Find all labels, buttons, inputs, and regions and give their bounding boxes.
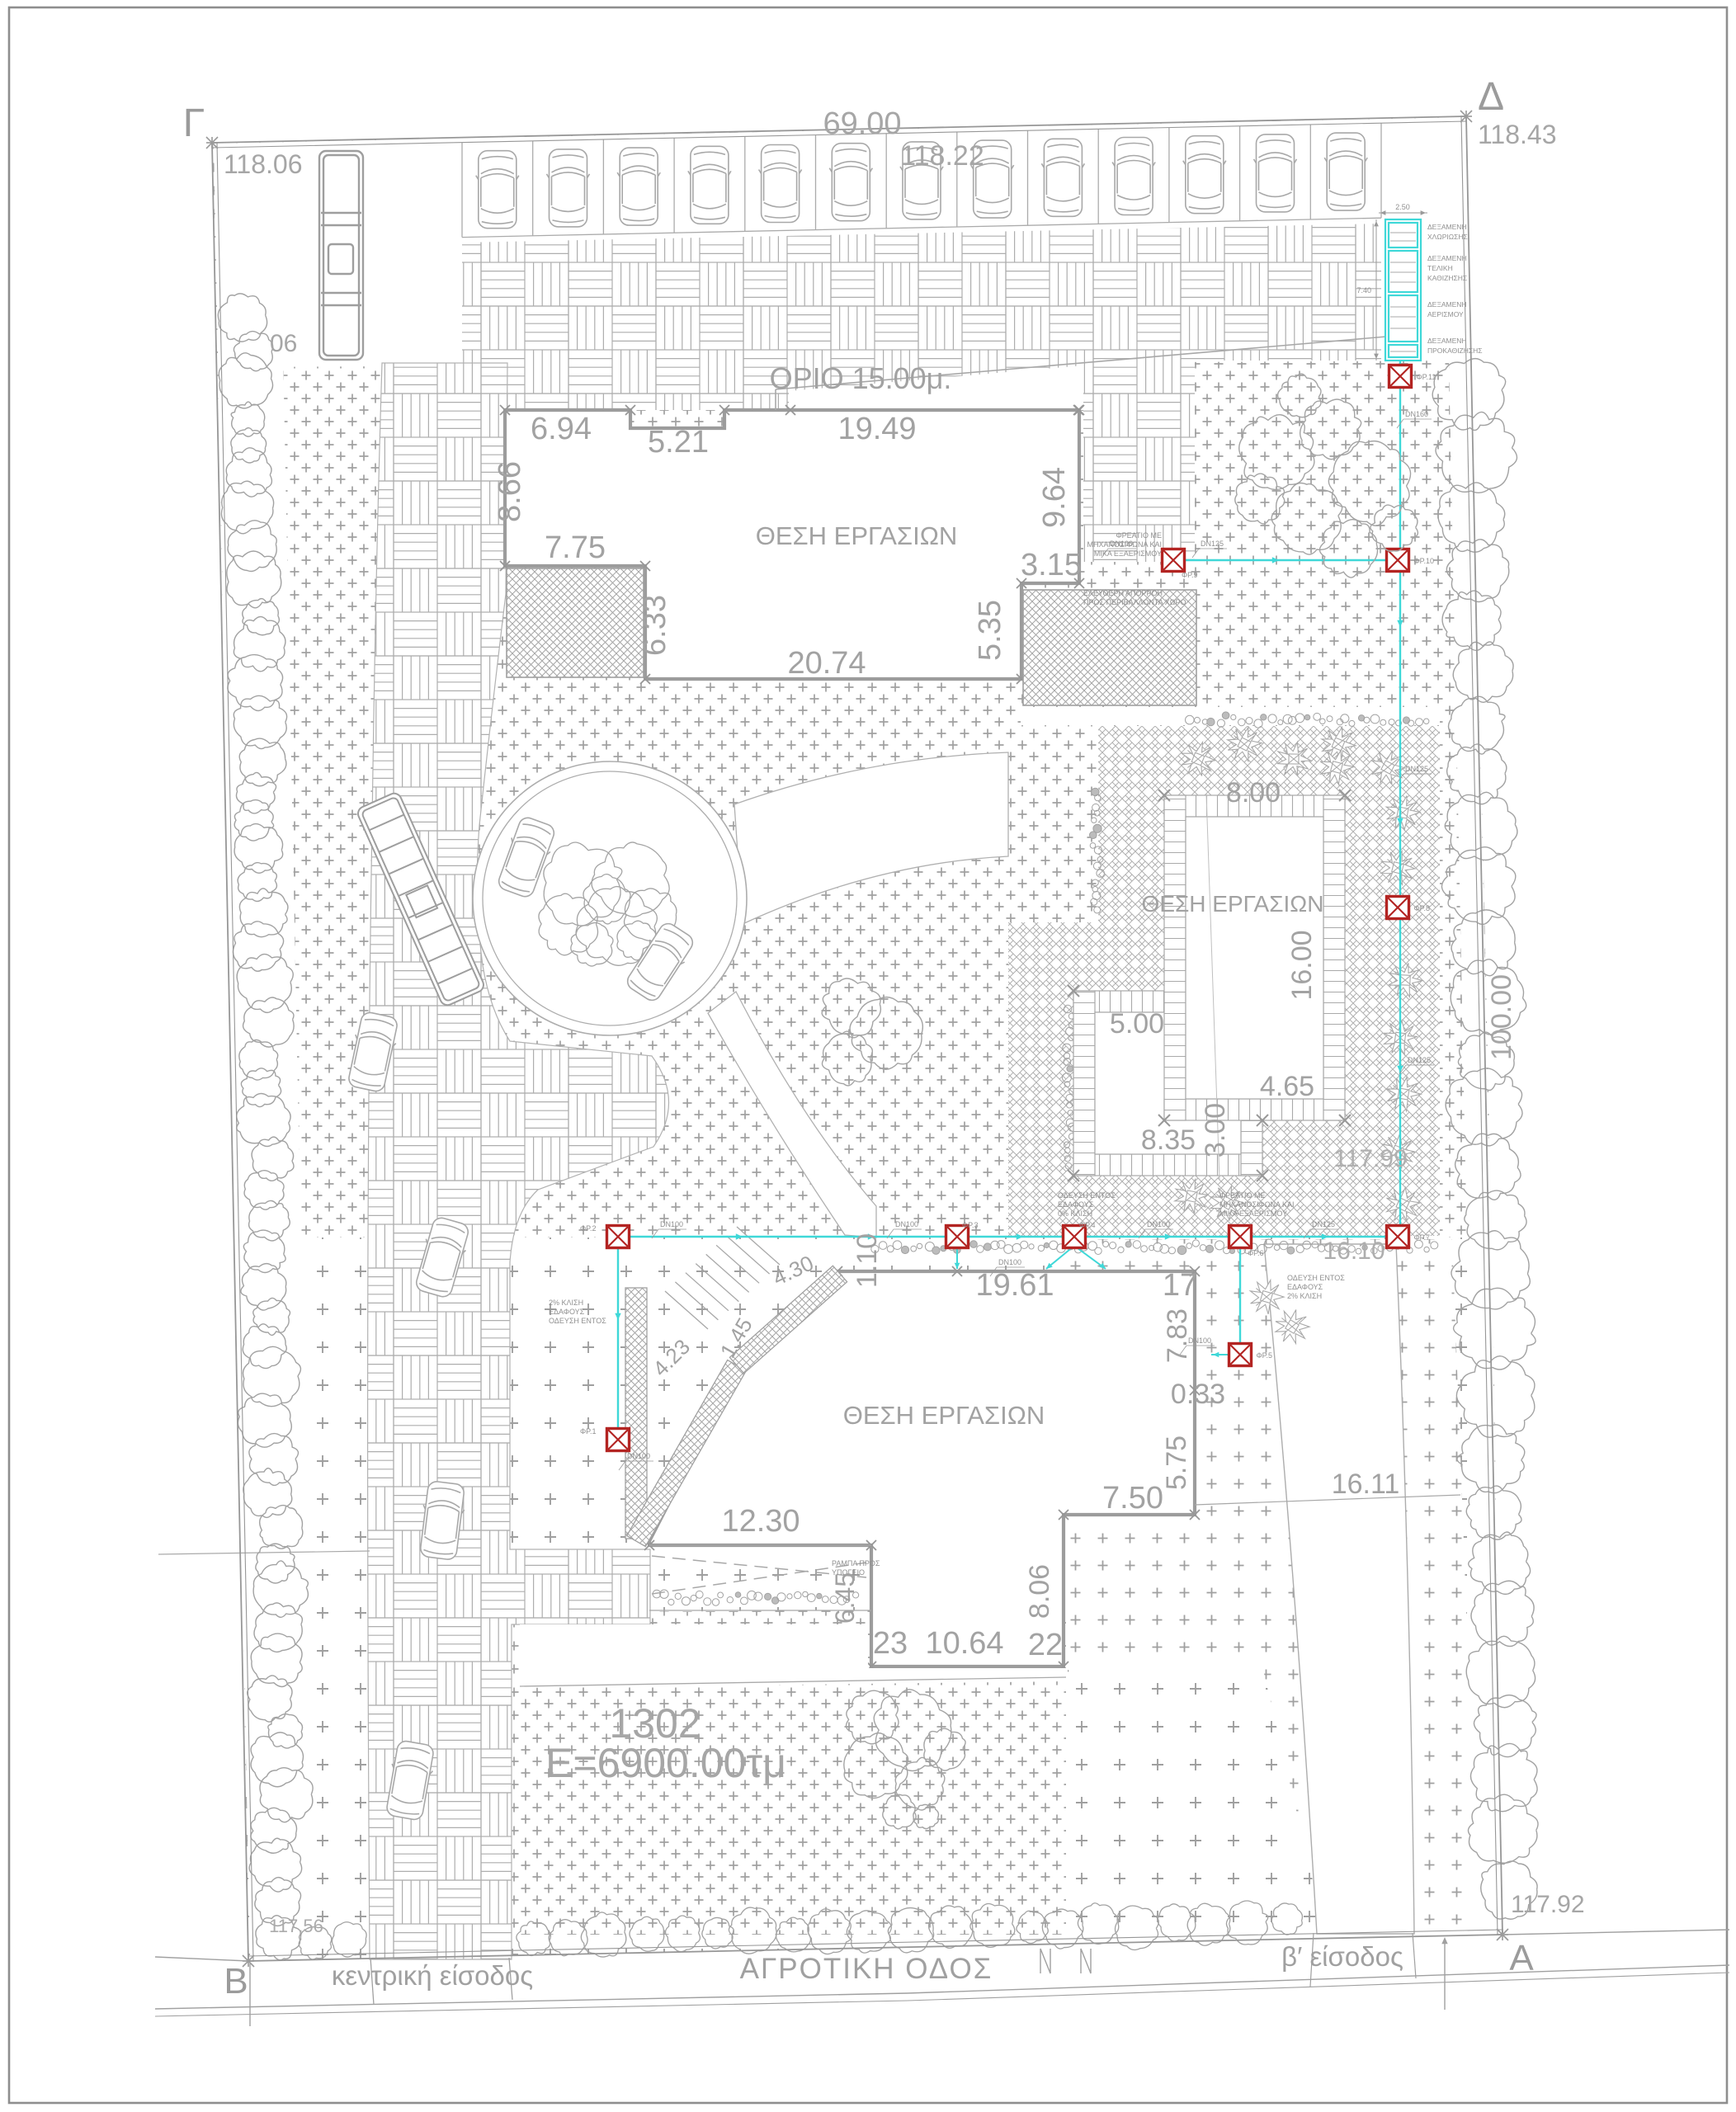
svg-text:ΜΙΚΑ ΕΞΑΕΡΙΣΜΟΥ: ΜΙΚΑ ΕΞΑΕΡΙΣΜΟΥ [1094, 549, 1162, 558]
svg-text:23: 23 [873, 1626, 908, 1661]
svg-text:16.10: 16.10 [1323, 1237, 1385, 1265]
svg-text:β′ είσοδος: β′ είσοδος [1281, 1941, 1403, 1972]
svg-text:ΑΓΡΟΤΙΚΗ ΟΔΟΣ: ΑΓΡΟΤΙΚΗ ΟΔΟΣ [740, 1953, 993, 1985]
svg-text:3.15: 3.15 [1021, 548, 1082, 582]
svg-text:8.35: 8.35 [1141, 1124, 1196, 1156]
svg-text:2.50: 2.50 [1395, 203, 1410, 211]
svg-text:16.00: 16.00 [1286, 930, 1318, 1000]
svg-text:ΟΔΕΥΣΗ ΕΝΤΟΣ: ΟΔΕΥΣΗ ΕΝΤΟΣ [1287, 1274, 1345, 1282]
svg-text:ΦΡ.6: ΦΡ.6 [1248, 1249, 1264, 1257]
svg-text:ΜΗΧΑΝΟΣΙΦΩΝΑ ΚΑΙ: ΜΗΧΑΝΟΣΙΦΩΝΑ ΚΑΙ [1219, 1200, 1295, 1209]
svg-text:ΦΡΕΑΤΙΟ ΜΕ: ΦΡΕΑΤΙΟ ΜΕ [1116, 531, 1162, 540]
svg-text:6.45: 6.45 [830, 1572, 860, 1624]
svg-text:7.83: 7.83 [1162, 1308, 1193, 1363]
svg-text:DN125: DN125 [1405, 765, 1428, 773]
svg-text:ΕΔΑΦΟΥΣ: ΕΔΑΦΟΥΣ [1058, 1200, 1094, 1209]
svg-text:19.49: 19.49 [837, 412, 916, 446]
svg-text:ΕΔΑΦΟΥΣ: ΕΔΑΦΟΥΣ [549, 1308, 585, 1316]
svg-text:ΟΡΙΟ 15.00μ.: ΟΡΙΟ 15.00μ. [770, 361, 952, 395]
svg-text:2% ΚΛΙΣΗ: 2% ΚΛΙΣΗ [549, 1299, 583, 1307]
svg-text:ΦΡ.5: ΦΡ.5 [1257, 1351, 1273, 1360]
svg-text:ΚΑΘΙΖΗΣΗΣ: ΚΑΘΙΖΗΣΗΣ [1427, 274, 1467, 282]
svg-text:12.30: 12.30 [721, 1504, 800, 1539]
svg-text:ΕΔΑΦΟΥΣ: ΕΔΑΦΟΥΣ [1287, 1283, 1323, 1291]
svg-text:ΟΔΕΥΣΗ ΕΝΤΟΣ: ΟΔΕΥΣΗ ΕΝΤΟΣ [549, 1317, 606, 1325]
svg-text:10.64: 10.64 [925, 1626, 1003, 1661]
svg-text:ΦΡ.3: ΦΡ.3 [962, 1221, 979, 1229]
svg-text:6.94: 6.94 [531, 412, 592, 446]
svg-text:5.75: 5.75 [1161, 1435, 1192, 1490]
svg-text:ΘΕΣΗ ΕΡΓΑΣΙΩΝ: ΘΕΣΗ ΕΡΓΑΣΙΩΝ [1142, 891, 1324, 917]
svg-text:6.33: 6.33 [638, 595, 672, 656]
svg-text:DN100: DN100 [627, 1452, 650, 1460]
svg-text:ΦΡ.11: ΦΡ.11 [1417, 373, 1436, 381]
svg-text:8.00: 8.00 [1226, 777, 1281, 808]
svg-text:ΦΡ.8: ΦΡ.8 [1414, 904, 1431, 912]
svg-text:Β: Β [224, 1961, 248, 2001]
svg-text:117.99: 117.99 [1333, 1145, 1408, 1172]
svg-text:ΔΕΞΑΜΕΝΗ: ΔΕΞΑΜΕΝΗ [1427, 254, 1467, 262]
svg-text:ΠΡΟΚΑΘΙΖΗΣΗΣ: ΠΡΟΚΑΘΙΖΗΣΗΣ [1427, 346, 1483, 355]
svg-text:DN125: DN125 [1201, 540, 1224, 548]
svg-text:118.06: 118.06 [224, 149, 303, 179]
svg-text:Ε=6900.00τμ: Ε=6900.00τμ [545, 1740, 786, 1786]
svg-text:ΦΡ.1: ΦΡ.1 [580, 1427, 597, 1435]
svg-text:DN125: DN125 [1312, 1220, 1335, 1228]
svg-text:1.10: 1.10 [851, 1233, 883, 1288]
svg-text:06: 06 [270, 330, 297, 357]
svg-text:7.75: 7.75 [545, 530, 606, 565]
svg-text:κεντρική είσοδος: κεντρική είσοδος [332, 1960, 533, 1991]
svg-text:7.50: 7.50 [1102, 1481, 1163, 1516]
svg-text:8.06: 8.06 [1024, 1564, 1055, 1619]
svg-text:0% ΚΛΙΣΗ: 0% ΚΛΙΣΗ [1058, 1209, 1092, 1218]
svg-text:ΠΡΟΣ ΠΕΡΙΒΑΛΛΟΝΤΑ ΧΩΡΟ: ΠΡΟΣ ΠΕΡΙΒΑΛΛΟΝΤΑ ΧΩΡΟ [1083, 598, 1186, 606]
svg-text:DN100: DN100 [895, 1220, 918, 1228]
svg-text:ΧΛΩΡΙΩΣΗΣ: ΧΛΩΡΙΩΣΗΣ [1427, 233, 1468, 241]
svg-text:ΦΡ.2: ΦΡ.2 [580, 1224, 597, 1233]
svg-text:5.35: 5.35 [973, 600, 1007, 661]
svg-text:DN100: DN100 [660, 1220, 683, 1228]
svg-text:ΦΡΕΑΤΙΟ ΜΕ: ΦΡΕΑΤΙΟ ΜΕ [1219, 1191, 1266, 1200]
svg-text:DN100: DN100 [1147, 1220, 1170, 1228]
svg-text:69.00: 69.00 [823, 106, 901, 141]
svg-text:3.00: 3.00 [1200, 1103, 1231, 1157]
svg-text:7.40: 7.40 [1356, 286, 1371, 295]
svg-text:118.43: 118.43 [1478, 120, 1557, 149]
svg-text:8.66: 8.66 [493, 461, 527, 522]
svg-text:ΤΕΛΙΚΗ: ΤΕΛΙΚΗ [1427, 264, 1453, 272]
svg-text:ΔΕΞΑΜΕΝΗ: ΔΕΞΑΜΕΝΗ [1427, 337, 1467, 345]
svg-text:Γ: Γ [183, 101, 205, 145]
svg-text:ΕΛΕΥΘΕΡΗ ΑΠΟΡΡΟΗ: ΕΛΕΥΘΕΡΗ ΑΠΟΡΡΟΗ [1083, 589, 1163, 597]
svg-text:ΦΡ.10: ΦΡ.10 [1414, 557, 1435, 565]
svg-text:5.00: 5.00 [1110, 1008, 1164, 1039]
svg-text:ΡΑΜΠΑ ΠΡΟΣ: ΡΑΜΠΑ ΠΡΟΣ [832, 1559, 880, 1567]
svg-text:ΦΡ.4: ΦΡ.4 [1079, 1221, 1096, 1229]
svg-text:4.65: 4.65 [1260, 1071, 1314, 1102]
svg-text:2% ΚΛΙΣΗ: 2% ΚΛΙΣΗ [1287, 1292, 1322, 1300]
svg-text:117.56: 117.56 [269, 1916, 323, 1936]
svg-text:Α: Α [1509, 1938, 1534, 1978]
svg-text:ΜΗΧΑΝΟΣΙΦΩΝΑ ΚΑΙ: ΜΗΧΑΝΟΣΙΦΩΝΑ ΚΑΙ [1087, 540, 1163, 549]
svg-text:ΔΕΞΑΜΕΝΗ: ΔΕΞΑΜΕΝΗ [1427, 300, 1467, 309]
svg-text:ΦΡ.9: ΦΡ.9 [1182, 571, 1198, 579]
svg-text:9.64: 9.64 [1037, 467, 1072, 528]
svg-text:0.33: 0.33 [1171, 1379, 1225, 1410]
svg-text:Δ: Δ [1478, 75, 1504, 119]
svg-text:DN160: DN160 [1405, 410, 1428, 418]
svg-text:ΔΕΞΑΜΕΝΗ: ΔΕΞΑΜΕΝΗ [1427, 223, 1467, 231]
svg-text:ΟΔΕΥΣΗ ΕΝΤΟΣ: ΟΔΕΥΣΗ ΕΝΤΟΣ [1058, 1191, 1116, 1200]
svg-text:20.74: 20.74 [787, 646, 866, 681]
svg-text:DN125: DN125 [1408, 1056, 1431, 1064]
svg-text:117.92: 117.92 [1511, 1891, 1585, 1918]
svg-text:16.11: 16.11 [1332, 1468, 1400, 1500]
svg-text:19.61: 19.61 [975, 1268, 1054, 1303]
svg-text:ΑΕΡΙΣΜΟΥ: ΑΕΡΙΣΜΟΥ [1427, 310, 1464, 318]
svg-text:ΜΙΚΑ ΕΞΑΕΡΙΣΜΟΥ: ΜΙΚΑ ΕΞΑΕΡΙΣΜΟΥ [1219, 1209, 1287, 1218]
svg-text:5.21: 5.21 [648, 425, 709, 460]
svg-text:ΦΡ.7: ΦΡ.7 [1414, 1233, 1431, 1242]
svg-text:ΘΕΣΗ ΕΡΓΑΣΙΩΝ: ΘΕΣΗ ΕΡΓΑΣΙΩΝ [843, 1401, 1045, 1430]
svg-text:22: 22 [1028, 1628, 1063, 1662]
svg-text:17: 17 [1163, 1268, 1197, 1303]
svg-text:118.22: 118.22 [900, 140, 984, 172]
svg-text:100.00: 100.00 [1486, 974, 1517, 1060]
svg-text:DN100: DN100 [998, 1258, 1021, 1266]
svg-text:ΘΕΣΗ ΕΡΓΑΣΙΩΝ: ΘΕΣΗ ΕΡΓΑΣΙΩΝ [756, 521, 958, 550]
